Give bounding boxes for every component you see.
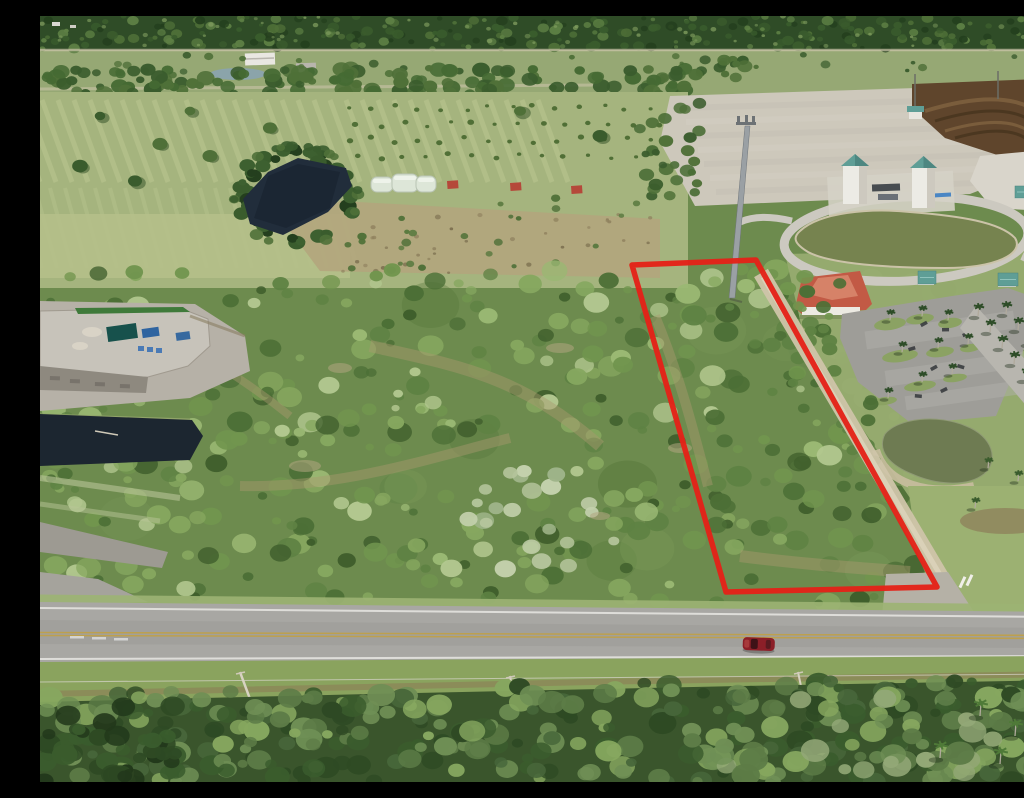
pasture-fields <box>40 92 688 288</box>
greenhouses <box>371 174 436 192</box>
drainage-canal <box>40 414 203 466</box>
two-lane-highway <box>40 602 1024 666</box>
aerial-photo-canvas <box>40 16 1024 782</box>
red-sedan <box>742 637 775 654</box>
aerial-photo: Oblique aerial photo of a vacant scrub-c… <box>40 16 1024 782</box>
